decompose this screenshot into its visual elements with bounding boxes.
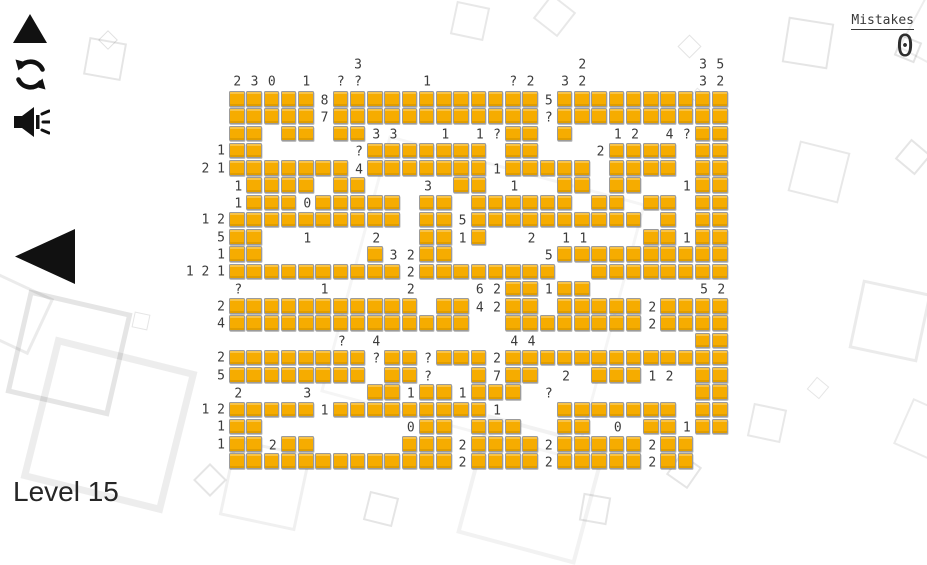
maze-tile[interactable] — [712, 402, 728, 418]
maze-tile[interactable] — [505, 143, 521, 159]
maze-tile[interactable] — [471, 402, 487, 418]
maze-tile[interactable] — [333, 298, 349, 314]
maze-tile[interactable] — [488, 108, 504, 124]
maze-tile[interactable] — [298, 126, 314, 142]
maze-tile[interactable] — [436, 143, 452, 159]
maze-tile[interactable] — [505, 281, 521, 297]
maze-tile[interactable] — [402, 436, 418, 452]
maze-tile[interactable] — [350, 350, 366, 366]
maze-tile[interactable] — [505, 350, 521, 366]
maze-tile[interactable] — [574, 246, 590, 262]
maze-tile[interactable] — [540, 264, 556, 280]
maze-tile[interactable] — [350, 91, 366, 107]
maze-tile[interactable] — [557, 315, 573, 331]
maze-tile[interactable] — [281, 195, 297, 211]
maze-tile[interactable] — [557, 126, 573, 142]
maze-tile[interactable] — [333, 126, 349, 142]
maze-tile[interactable] — [609, 264, 625, 280]
maze-tile[interactable] — [315, 453, 331, 469]
maze-tile[interactable] — [626, 160, 642, 176]
maze-tile[interactable] — [281, 212, 297, 228]
maze-tile[interactable] — [471, 108, 487, 124]
maze-tile[interactable] — [419, 315, 435, 331]
maze-tile[interactable] — [626, 350, 642, 366]
maze-tile[interactable] — [557, 177, 573, 193]
maze-tile[interactable] — [419, 160, 435, 176]
maze-tile[interactable] — [315, 212, 331, 228]
maze-tile[interactable] — [505, 384, 521, 400]
maze-tile[interactable] — [350, 453, 366, 469]
maze-tile[interactable] — [609, 402, 625, 418]
maze-tile[interactable] — [505, 212, 521, 228]
maze-tile[interactable] — [264, 367, 280, 383]
maze-tile[interactable] — [367, 246, 383, 262]
maze-tile[interactable] — [522, 281, 538, 297]
maze-tile[interactable] — [626, 315, 642, 331]
maze-tile[interactable] — [471, 419, 487, 435]
maze-tile[interactable] — [419, 108, 435, 124]
maze-tile[interactable] — [246, 264, 262, 280]
maze-tile[interactable] — [695, 229, 711, 245]
maze-tile[interactable] — [384, 350, 400, 366]
maze-tile[interactable] — [591, 350, 607, 366]
maze-tile[interactable] — [402, 350, 418, 366]
maze-tile[interactable] — [678, 350, 694, 366]
maze-tile[interactable] — [367, 315, 383, 331]
maze-tile[interactable] — [246, 126, 262, 142]
maze-tile[interactable] — [436, 264, 452, 280]
maze-tile[interactable] — [350, 212, 366, 228]
maze-tile[interactable] — [367, 143, 383, 159]
maze-tile[interactable] — [402, 160, 418, 176]
restart-button[interactable] — [12, 56, 49, 93]
maze-tile[interactable] — [350, 126, 366, 142]
maze-tile[interactable] — [264, 108, 280, 124]
maze-tile[interactable] — [436, 419, 452, 435]
maze-tile[interactable] — [505, 367, 521, 383]
maze-tile[interactable] — [315, 264, 331, 280]
maze-tile[interactable] — [712, 91, 728, 107]
maze-tile[interactable] — [574, 108, 590, 124]
maze-tile[interactable] — [264, 160, 280, 176]
maze-tile[interactable] — [367, 195, 383, 211]
maze-tile[interactable] — [298, 367, 314, 383]
maze-tile[interactable] — [350, 298, 366, 314]
maze-tile[interactable] — [522, 126, 538, 142]
maze-tile[interactable] — [712, 212, 728, 228]
maze-tile[interactable] — [264, 177, 280, 193]
maze-tile[interactable] — [229, 91, 245, 107]
maze-tile[interactable] — [246, 367, 262, 383]
maze-tile[interactable] — [591, 212, 607, 228]
maze-tile[interactable] — [643, 264, 659, 280]
maze-tile[interactable] — [333, 195, 349, 211]
maze-tile[interactable] — [591, 246, 607, 262]
maze-tile[interactable] — [626, 298, 642, 314]
maze-tile[interactable] — [350, 315, 366, 331]
maze-tile[interactable] — [229, 160, 245, 176]
maze-tile[interactable] — [522, 298, 538, 314]
maze-tile[interactable] — [264, 315, 280, 331]
maze-tile[interactable] — [574, 160, 590, 176]
maze-tile[interactable] — [281, 264, 297, 280]
maze-tile[interactable] — [315, 350, 331, 366]
maze-tile[interactable] — [505, 160, 521, 176]
maze-tile[interactable] — [436, 402, 452, 418]
maze-tile[interactable] — [333, 212, 349, 228]
maze-tile[interactable] — [626, 108, 642, 124]
maze-tile[interactable] — [281, 367, 297, 383]
maze-tile[interactable] — [557, 246, 573, 262]
maze-tile[interactable] — [695, 91, 711, 107]
maze-tile[interactable] — [712, 246, 728, 262]
maze-tile[interactable] — [712, 419, 728, 435]
maze-tile[interactable] — [298, 350, 314, 366]
maze-tile[interactable] — [574, 315, 590, 331]
maze-tile[interactable] — [540, 160, 556, 176]
maze-tile[interactable] — [384, 160, 400, 176]
maze-tile[interactable] — [315, 160, 331, 176]
maze-tile[interactable] — [367, 160, 383, 176]
maze-tile[interactable] — [609, 453, 625, 469]
maze-tile[interactable] — [591, 195, 607, 211]
maze-tile[interactable] — [557, 281, 573, 297]
maze-tile[interactable] — [626, 91, 642, 107]
maze-tile[interactable] — [522, 195, 538, 211]
maze-tile[interactable] — [229, 436, 245, 452]
maze-tile[interactable] — [419, 402, 435, 418]
maze-tile[interactable] — [246, 315, 262, 331]
maze-tile[interactable] — [264, 350, 280, 366]
maze-tile[interactable] — [591, 298, 607, 314]
maze-tile[interactable] — [522, 350, 538, 366]
maze-tile[interactable] — [367, 453, 383, 469]
maze-tile[interactable] — [505, 419, 521, 435]
maze-tile[interactable] — [315, 195, 331, 211]
maze-tile[interactable] — [660, 350, 676, 366]
maze-tile[interactable] — [591, 315, 607, 331]
maze-tile[interactable] — [557, 212, 573, 228]
maze-tile[interactable] — [660, 246, 676, 262]
maze-tile[interactable] — [367, 264, 383, 280]
maze-tile[interactable] — [229, 108, 245, 124]
maze-tile[interactable] — [695, 160, 711, 176]
maze-tile[interactable] — [660, 419, 676, 435]
maze-tile[interactable] — [281, 350, 297, 366]
maze-tile[interactable] — [419, 212, 435, 228]
maze-tile[interactable] — [626, 246, 642, 262]
maze-tile[interactable] — [229, 419, 245, 435]
maze-tile[interactable] — [246, 402, 262, 418]
maze-tile[interactable] — [471, 453, 487, 469]
maze-tile[interactable] — [591, 367, 607, 383]
maze-tile[interactable] — [643, 108, 659, 124]
maze-tile[interactable] — [471, 350, 487, 366]
maze-tile[interactable] — [609, 108, 625, 124]
maze-tile[interactable] — [522, 108, 538, 124]
maze-tile[interactable] — [626, 453, 642, 469]
maze-tile[interactable] — [488, 453, 504, 469]
maze-tile[interactable] — [298, 264, 314, 280]
maze-tile[interactable] — [712, 108, 728, 124]
maze-tile[interactable] — [660, 298, 676, 314]
maze-tile[interactable] — [264, 91, 280, 107]
maze-tile[interactable] — [712, 195, 728, 211]
maze-tile[interactable] — [281, 402, 297, 418]
maze-tile[interactable] — [298, 108, 314, 124]
maze-tile[interactable] — [505, 315, 521, 331]
maze-tile[interactable] — [246, 453, 262, 469]
maze-tile[interactable] — [712, 367, 728, 383]
maze-tile[interactable] — [367, 402, 383, 418]
maze-tile[interactable] — [384, 212, 400, 228]
maze-tile[interactable] — [367, 298, 383, 314]
maze-tile[interactable] — [333, 108, 349, 124]
maze-tile[interactable] — [229, 264, 245, 280]
maze-tile[interactable] — [712, 160, 728, 176]
maze-tile[interactable] — [505, 126, 521, 142]
maze-tile[interactable] — [246, 177, 262, 193]
maze-tile[interactable] — [471, 384, 487, 400]
maze-tile[interactable] — [488, 264, 504, 280]
maze-tile[interactable] — [453, 264, 469, 280]
maze-tile[interactable] — [695, 108, 711, 124]
maze-tile[interactable] — [471, 195, 487, 211]
maze-tile[interactable] — [522, 315, 538, 331]
maze-tile[interactable] — [350, 264, 366, 280]
maze-tile[interactable] — [712, 229, 728, 245]
maze-tile[interactable] — [298, 298, 314, 314]
maze-tile[interactable] — [505, 453, 521, 469]
maze-tile[interactable] — [419, 91, 435, 107]
maze-tile[interactable] — [471, 264, 487, 280]
maze-tile[interactable] — [660, 402, 676, 418]
maze-tile[interactable] — [436, 453, 452, 469]
maze-tile[interactable] — [643, 143, 659, 159]
maze-tile[interactable] — [695, 264, 711, 280]
maze-tile[interactable] — [678, 264, 694, 280]
maze-tile[interactable] — [609, 350, 625, 366]
maze-tile[interactable] — [298, 160, 314, 176]
maze-tile[interactable] — [626, 264, 642, 280]
maze-tile[interactable] — [281, 177, 297, 193]
maze-tile[interactable] — [660, 195, 676, 211]
maze-tile[interactable] — [333, 264, 349, 280]
maze-tile[interactable] — [695, 212, 711, 228]
maze-tile[interactable] — [557, 436, 573, 452]
maze-tile[interactable] — [643, 246, 659, 262]
maze-tile[interactable] — [471, 212, 487, 228]
maze-tile[interactable] — [540, 212, 556, 228]
maze-tile[interactable] — [384, 143, 400, 159]
maze-tile[interactable] — [281, 108, 297, 124]
maze-tile[interactable] — [695, 177, 711, 193]
maze-tile[interactable] — [712, 333, 728, 349]
maze-tile[interactable] — [557, 402, 573, 418]
maze-tile[interactable] — [367, 108, 383, 124]
maze-tile[interactable] — [626, 367, 642, 383]
maze-tile[interactable] — [298, 315, 314, 331]
maze-tile[interactable] — [695, 315, 711, 331]
maze-tile[interactable] — [350, 108, 366, 124]
maze-tile[interactable] — [540, 315, 556, 331]
maze-tile[interactable] — [591, 264, 607, 280]
maze-tile[interactable] — [436, 315, 452, 331]
maze-tile[interactable] — [591, 91, 607, 107]
maze-tile[interactable] — [660, 453, 676, 469]
maze-tile[interactable] — [660, 160, 676, 176]
maze-tile[interactable] — [419, 143, 435, 159]
maze-tile[interactable] — [660, 229, 676, 245]
maze-tile[interactable] — [678, 315, 694, 331]
maze-tile[interactable] — [367, 384, 383, 400]
maze-tile[interactable] — [695, 143, 711, 159]
maze-tile[interactable] — [626, 402, 642, 418]
maze-tile[interactable] — [574, 419, 590, 435]
maze-tile[interactable] — [522, 143, 538, 159]
maze-tile[interactable] — [229, 350, 245, 366]
maze-tile[interactable] — [315, 367, 331, 383]
maze-tile[interactable] — [695, 333, 711, 349]
maze-tile[interactable] — [419, 264, 435, 280]
maze-tile[interactable] — [712, 350, 728, 366]
maze-tile[interactable] — [591, 402, 607, 418]
maze-tile[interactable] — [384, 384, 400, 400]
maze-tile[interactable] — [695, 350, 711, 366]
maze-tile[interactable] — [522, 212, 538, 228]
maze-tile[interactable] — [350, 177, 366, 193]
maze-tile[interactable] — [557, 453, 573, 469]
maze-tile[interactable] — [712, 126, 728, 142]
maze-tile[interactable] — [609, 212, 625, 228]
maze-tile[interactable] — [402, 453, 418, 469]
maze-tile[interactable] — [574, 453, 590, 469]
maze-tile[interactable] — [643, 160, 659, 176]
maze-tile[interactable] — [591, 108, 607, 124]
maze-tile[interactable] — [281, 126, 297, 142]
maze-tile[interactable] — [471, 177, 487, 193]
maze-tile[interactable] — [626, 177, 642, 193]
maze-tile[interactable] — [540, 195, 556, 211]
maze-tile[interactable] — [453, 402, 469, 418]
maze-tile[interactable] — [660, 315, 676, 331]
maze-tile[interactable] — [333, 453, 349, 469]
maze-tile[interactable] — [402, 315, 418, 331]
maze-tile[interactable] — [609, 177, 625, 193]
maze-tile[interactable] — [246, 160, 262, 176]
maze-tile[interactable] — [298, 402, 314, 418]
maze-tile[interactable] — [419, 453, 435, 469]
sound-button[interactable] — [12, 106, 50, 138]
maze-tile[interactable] — [246, 108, 262, 124]
maze-tile[interactable] — [540, 350, 556, 366]
maze-tile[interactable] — [505, 264, 521, 280]
maze-tile[interactable] — [505, 108, 521, 124]
maze-tile[interactable] — [402, 367, 418, 383]
maze-tile[interactable] — [246, 212, 262, 228]
maze-tile[interactable] — [384, 315, 400, 331]
maze-tile[interactable] — [436, 436, 452, 452]
maze-tile[interactable] — [626, 143, 642, 159]
maze-tile[interactable] — [609, 143, 625, 159]
maze-tile[interactable] — [712, 384, 728, 400]
maze-tile[interactable] — [574, 436, 590, 452]
maze-tile[interactable] — [436, 160, 452, 176]
maze-tile[interactable] — [384, 298, 400, 314]
maze-tile[interactable] — [643, 402, 659, 418]
maze-tile[interactable] — [229, 126, 245, 142]
maze-tile[interactable] — [436, 108, 452, 124]
maze-tile[interactable] — [678, 453, 694, 469]
maze-tile[interactable] — [505, 436, 521, 452]
maze-tile[interactable] — [350, 195, 366, 211]
maze-tile[interactable] — [522, 264, 538, 280]
maze-tile[interactable] — [384, 108, 400, 124]
maze-tile[interactable] — [436, 195, 452, 211]
maze-tile[interactable] — [626, 212, 642, 228]
maze-tile[interactable] — [333, 367, 349, 383]
maze-tile[interactable] — [574, 402, 590, 418]
maze-tile[interactable] — [678, 91, 694, 107]
maze-tile[interactable] — [660, 264, 676, 280]
maze-tile[interactable] — [609, 298, 625, 314]
maze-tile[interactable] — [281, 453, 297, 469]
maze-tile[interactable] — [695, 246, 711, 262]
maze-tile[interactable] — [574, 350, 590, 366]
maze-tile[interactable] — [453, 91, 469, 107]
maze-tile[interactable] — [350, 402, 366, 418]
maze-tile[interactable] — [264, 212, 280, 228]
maze-tile[interactable] — [488, 195, 504, 211]
maze-tile[interactable] — [229, 212, 245, 228]
maze-tile[interactable] — [419, 419, 435, 435]
maze-tile[interactable] — [712, 177, 728, 193]
maze-tile[interactable] — [246, 229, 262, 245]
maze-tile[interactable] — [333, 160, 349, 176]
maze-tile[interactable] — [453, 108, 469, 124]
maze-tile[interactable] — [402, 402, 418, 418]
maze-tile[interactable] — [229, 367, 245, 383]
maze-tile[interactable] — [333, 177, 349, 193]
maze-tile[interactable] — [367, 91, 383, 107]
maze-tile[interactable] — [522, 91, 538, 107]
maze-tile[interactable] — [229, 402, 245, 418]
maze-tile[interactable] — [298, 436, 314, 452]
maze-tile[interactable] — [591, 436, 607, 452]
maze-tile[interactable] — [453, 350, 469, 366]
maze-tile[interactable] — [436, 91, 452, 107]
maze-tile[interactable] — [505, 195, 521, 211]
maze-tile[interactable] — [246, 91, 262, 107]
maze-tile[interactable] — [281, 315, 297, 331]
maze-tile[interactable] — [557, 298, 573, 314]
maze-tile[interactable] — [488, 419, 504, 435]
maze-tile[interactable] — [453, 315, 469, 331]
back-button[interactable] — [14, 228, 76, 285]
maze-tile[interactable] — [557, 108, 573, 124]
maze-tile[interactable] — [505, 91, 521, 107]
maze-tile[interactable] — [712, 143, 728, 159]
maze-tile[interactable] — [643, 419, 659, 435]
maze-tile[interactable] — [229, 246, 245, 262]
maze-tile[interactable] — [557, 195, 573, 211]
maze-tile[interactable] — [453, 298, 469, 314]
maze-tile[interactable] — [298, 91, 314, 107]
maze-tile[interactable] — [229, 229, 245, 245]
maze-tile[interactable] — [574, 91, 590, 107]
maze-tile[interactable] — [315, 315, 331, 331]
maze-tile[interactable] — [471, 143, 487, 159]
